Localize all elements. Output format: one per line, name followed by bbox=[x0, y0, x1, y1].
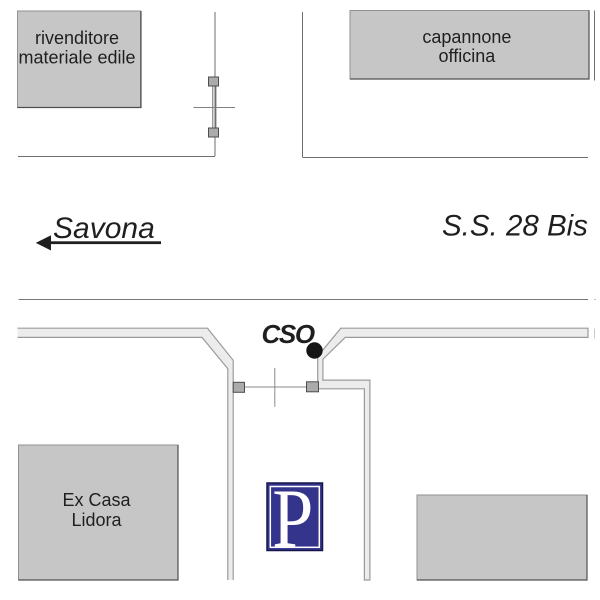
svg-text:Ex Casa: Ex Casa bbox=[62, 490, 131, 510]
svg-text:CSO: CSO bbox=[262, 319, 315, 349]
svg-text:P: P bbox=[272, 472, 313, 565]
svg-text:S.S. 28 Bis: S.S. 28 Bis bbox=[442, 210, 588, 243]
svg-text:Lidora: Lidora bbox=[71, 510, 122, 530]
svg-text:officina: officina bbox=[439, 46, 497, 66]
svg-text:rivenditore: rivenditore bbox=[35, 28, 119, 48]
svg-text:materiale edile: materiale edile bbox=[18, 48, 135, 68]
svg-text:Savona: Savona bbox=[53, 212, 155, 245]
svg-text:capannone: capannone bbox=[422, 27, 511, 47]
